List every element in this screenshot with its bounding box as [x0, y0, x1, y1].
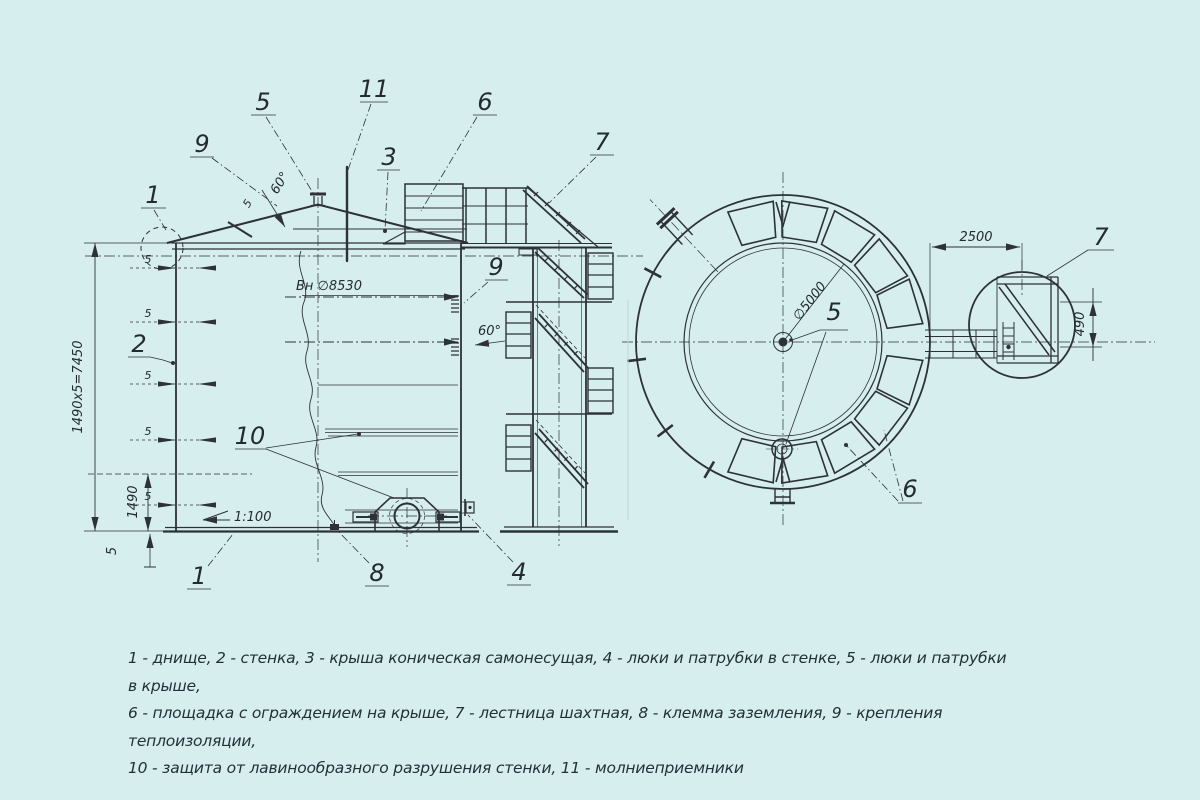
legend-line-1: 1 - днище, 2 - стенка, 3 - крыша коничес… [128, 645, 1008, 700]
callout-2: 2 [128, 330, 175, 365]
svg-text:11: 11 [359, 75, 390, 103]
shell-course-lines [302, 296, 458, 524]
svg-text:9: 9 [194, 130, 209, 158]
shell-nozzle [461, 499, 474, 516]
callout-4: 4 [468, 515, 531, 586]
tank-shell [163, 205, 479, 532]
insulation-fixings [451, 296, 459, 355]
roof-annotations: 60° 5 [228, 170, 293, 237]
front-elevation: Вн ∅8530 5 5 5 5 5 1490х5=7450 1490 5 60… [71, 167, 643, 567]
dim-stair-angle: 60° [478, 324, 501, 339]
svg-text:3: 3 [381, 143, 396, 171]
svg-text:1: 1 [191, 562, 206, 590]
svg-text:7: 7 [594, 128, 610, 156]
svg-text:1: 1 [145, 181, 160, 209]
front-callouts: 1 9 5 11 3 6 7 9 2 [128, 75, 614, 590]
callout-5-plan: 5 [786, 298, 848, 444]
stair-angle-annotation: 60° [475, 324, 505, 345]
dim-wall-height: 1490х5=7450 [71, 340, 86, 433]
svg-text:5: 5 [826, 298, 841, 326]
left-dimensions: 1490х5=7450 1490 5 [71, 243, 252, 567]
weld-size-2: 5 [145, 307, 152, 320]
callout-8: 8 [336, 529, 389, 587]
callout-10: 10 [235, 422, 394, 498]
ladder-top-flight [523, 186, 598, 247]
svg-text:10: 10 [235, 422, 266, 450]
legend-line-3: 10 - защита от лавинообразного разрушени… [128, 755, 1008, 783]
plan-view: ∅5000 5 6 2500 490 [622, 172, 1155, 528]
callout-9-wall: 9 [464, 253, 508, 303]
dim-walkway-width: 490 [1073, 312, 1088, 337]
weld-seam-marks: 5 5 5 5 5 [130, 253, 216, 508]
callout-9-roof: 9 [190, 130, 277, 206]
ladder-offset-dim: 2500 [930, 230, 1022, 332]
dim-roof-weld: 5 [240, 197, 255, 210]
svg-text:6: 6 [902, 475, 917, 503]
shaft-ladder: 60° [383, 184, 618, 532]
svg-text:9: 9 [488, 253, 503, 281]
svg-text:8: 8 [369, 559, 384, 587]
svg-text:6: 6 [477, 88, 492, 116]
earthing-clamp [330, 520, 339, 530]
legend-line-2: 6 - площадка с ограждением на крыше, 7 -… [128, 700, 1008, 755]
inner-diameter-dim: Вн ∅8530 [285, 279, 458, 342]
svg-text:2: 2 [131, 330, 146, 358]
callout-7-plan: 7 [1047, 223, 1114, 276]
ladder-plan-detail [969, 260, 1075, 378]
bottom-slope: 1:100 [203, 510, 271, 525]
dim-bottom-thickness: 5 [105, 547, 120, 555]
walkway-plan [925, 330, 997, 358]
svg-text:5: 5 [255, 88, 270, 116]
dim-course-height: 1490 [126, 485, 141, 518]
dim-roof-angle: 60° [268, 170, 293, 197]
callout-1-bottom: 1 [187, 534, 233, 590]
drawing-sheet: Вн ∅8530 5 5 5 5 5 1490х5=7450 1490 5 60… [0, 0, 1200, 800]
dim-ladder-offset: 2500 [959, 230, 992, 245]
weld-size-4: 5 [145, 425, 152, 438]
walkway-width-dim: 490 [1060, 288, 1102, 361]
legend: 1 - днище, 2 - стенка, 3 - крыша коничес… [128, 645, 1008, 783]
svg-text:7: 7 [1093, 223, 1109, 251]
weld-size-3: 5 [145, 369, 152, 382]
roof-platform [383, 184, 612, 255]
svg-text:4: 4 [511, 558, 526, 586]
dim-bottom-slope: 1:100 [234, 510, 271, 525]
callout-7-ladder: 7 [549, 128, 614, 203]
manhole [353, 488, 460, 547]
centerlines-plan [622, 172, 1155, 528]
dim-inner-diameter: Вн ∅8530 [296, 279, 362, 294]
dim-plan-diameter: ∅5000 [791, 279, 830, 323]
